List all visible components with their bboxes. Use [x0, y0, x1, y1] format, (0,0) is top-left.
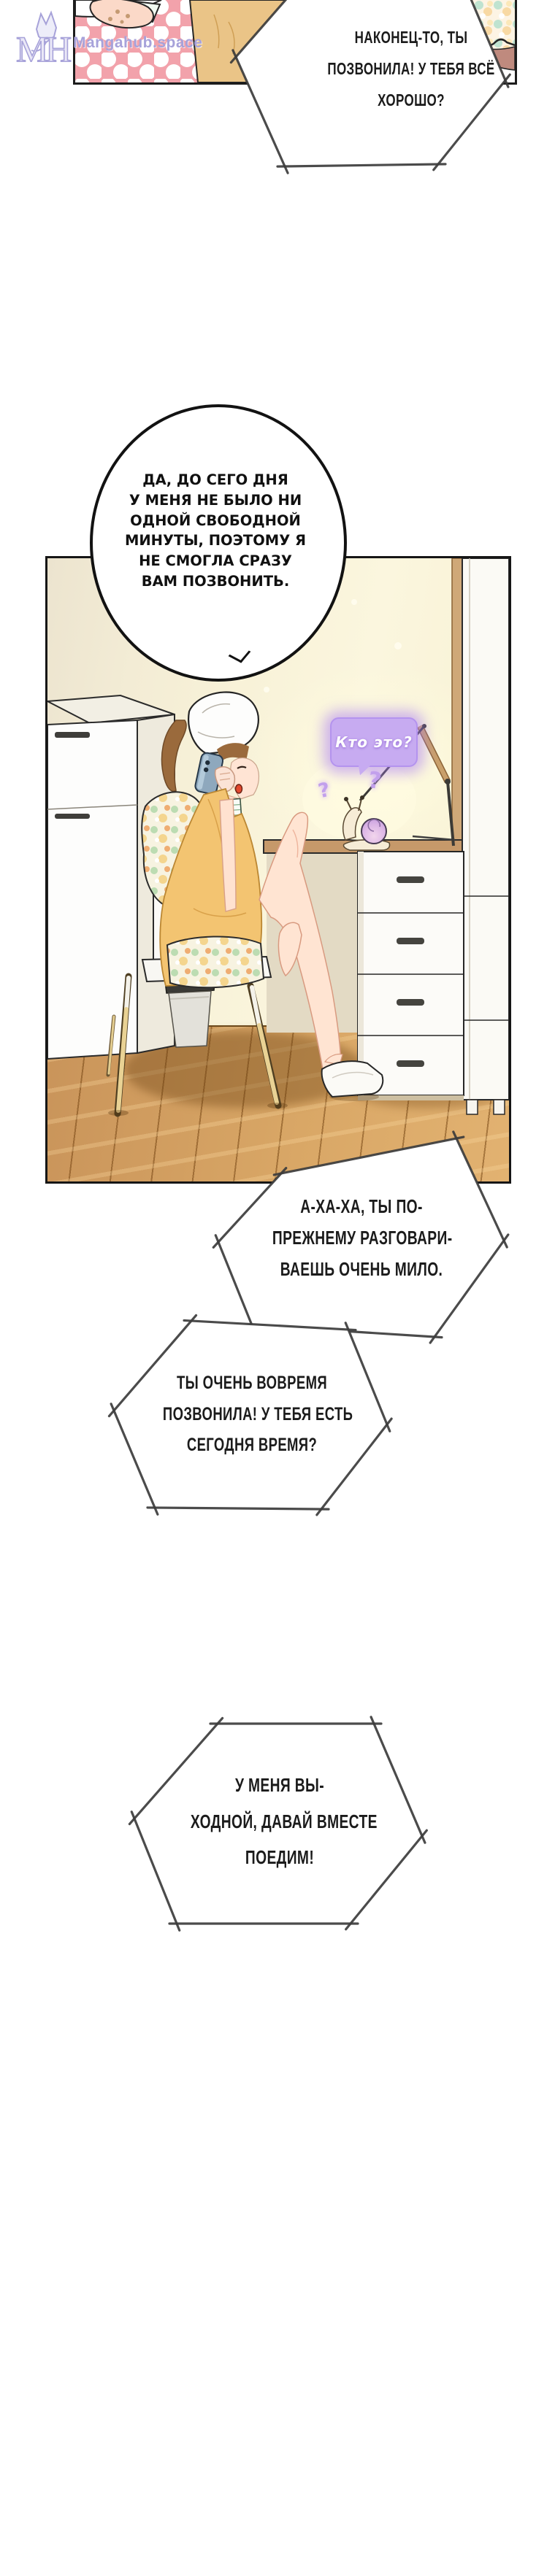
watermark-logo: M H	[13, 6, 73, 66]
dialogue-line: А-ХА-ХА, ТЫ ПО-	[272, 1191, 451, 1222]
dialogue-line: У МЕНЯ НЕ БЫЛО НИ	[110, 490, 321, 511]
drawer-handle	[397, 876, 424, 883]
dialogue-line: ХОРОШО?	[322, 85, 500, 116]
logo-letter-H: H	[45, 28, 72, 66]
speech-bubble-1-text: НАКОНЕЦ-ТО, ТЫ ПОЗВОНИЛА! У ТЕБЯ ВСЁ ХОР…	[291, 22, 532, 116]
speech-bubble-2-text: ДА, ДО СЕГО ДНЯ У МЕНЯ НЕ БЫЛО НИ ОДНОЙ …	[110, 470, 321, 592]
speech-bubble-3-text: А-ХА-ХА, ТЫ ПО- ПРЕЖНЕМУ РАЗГОВАРИ- ВАЕШ…	[241, 1191, 482, 1285]
snail-speech-bubble: Кто это?	[330, 717, 418, 767]
logo-letter-M: M	[16, 28, 48, 66]
dialogue-line: ПОЕДИМ!	[191, 1840, 369, 1876]
speech-bubble-4-text: ТЫ ОЧЕНЬ ВОВРЕМЯ ПОЗВОНИЛА! У ТЕБЯ ЕСТЬ …	[131, 1368, 372, 1461]
dialogue-line: ВАЕШЬ ОЧЕНЬ МИЛО.	[272, 1254, 451, 1285]
dialogue-line: ТЫ ОЧЕНЬ ВОВРЕМЯ	[163, 1368, 341, 1399]
drawer-unit	[358, 852, 464, 1100]
wardrobe	[462, 558, 509, 1114]
dialogue-line: НЕ СМОГЛА СРАЗУ	[110, 551, 321, 571]
drawer-handle	[397, 1060, 424, 1067]
speech-bubble-5-text: У МЕНЯ ВЫ- ХОДНОЙ, ДАВАЙ ВМЕСТЕ ПОЕДИМ!	[159, 1767, 400, 1876]
dialogue-line: ВАМ ПОЗВОНИТЬ.	[110, 571, 321, 592]
dialogue-line: НАКОНЕЦ-ТО, ТЫ	[322, 22, 500, 53]
fridge-handle-bottom	[55, 814, 90, 819]
dialogue-line: ДА, ДО СЕГО ДНЯ	[110, 470, 321, 490]
snail-speech-text: Кто это?	[335, 733, 412, 751]
mouth	[236, 784, 242, 793]
dialogue-line: СЕГОДНЯ ВРЕМЯ?	[163, 1430, 341, 1461]
head-towel	[188, 692, 259, 754]
dialogue-line: У МЕНЯ ВЫ-	[191, 1767, 369, 1804]
dialogue-line: МИНУТЫ, ПОЭТОМУ Я	[110, 531, 321, 551]
drawer-handle	[397, 938, 424, 944]
dialogue-line: ПОЗВОНИЛА! У ТЕБЯ ЕСТЬ	[163, 1399, 341, 1430]
dialogue-line: ПОЗВОНИЛА! У ТЕБЯ ВСЁ	[322, 53, 500, 85]
hex-bubbles	[0, 0, 555, 2576]
floral-hem	[167, 936, 264, 987]
snail-eye	[344, 797, 348, 801]
snail-eye	[360, 795, 364, 800]
watermark-site-text: Mangahub.space	[73, 34, 202, 52]
dialogue-line: ХОДНОЙ, ДАВАЙ ВМЕСТЕ	[191, 1804, 369, 1840]
comic-page: НАКОНЕЦ-ТО, ТЫ ПОЗВОНИЛА! У ТЕБЯ ВСЁ ХОР…	[0, 0, 555, 2576]
dialogue-line: ПРЕЖНЕМУ РАЗГОВАРИ-	[272, 1222, 451, 1254]
dialogue-line: ОДНОЙ СВОБОДНОЙ	[110, 511, 321, 531]
fridge-handle-top	[55, 732, 90, 738]
drawer-handle	[397, 999, 424, 1006]
